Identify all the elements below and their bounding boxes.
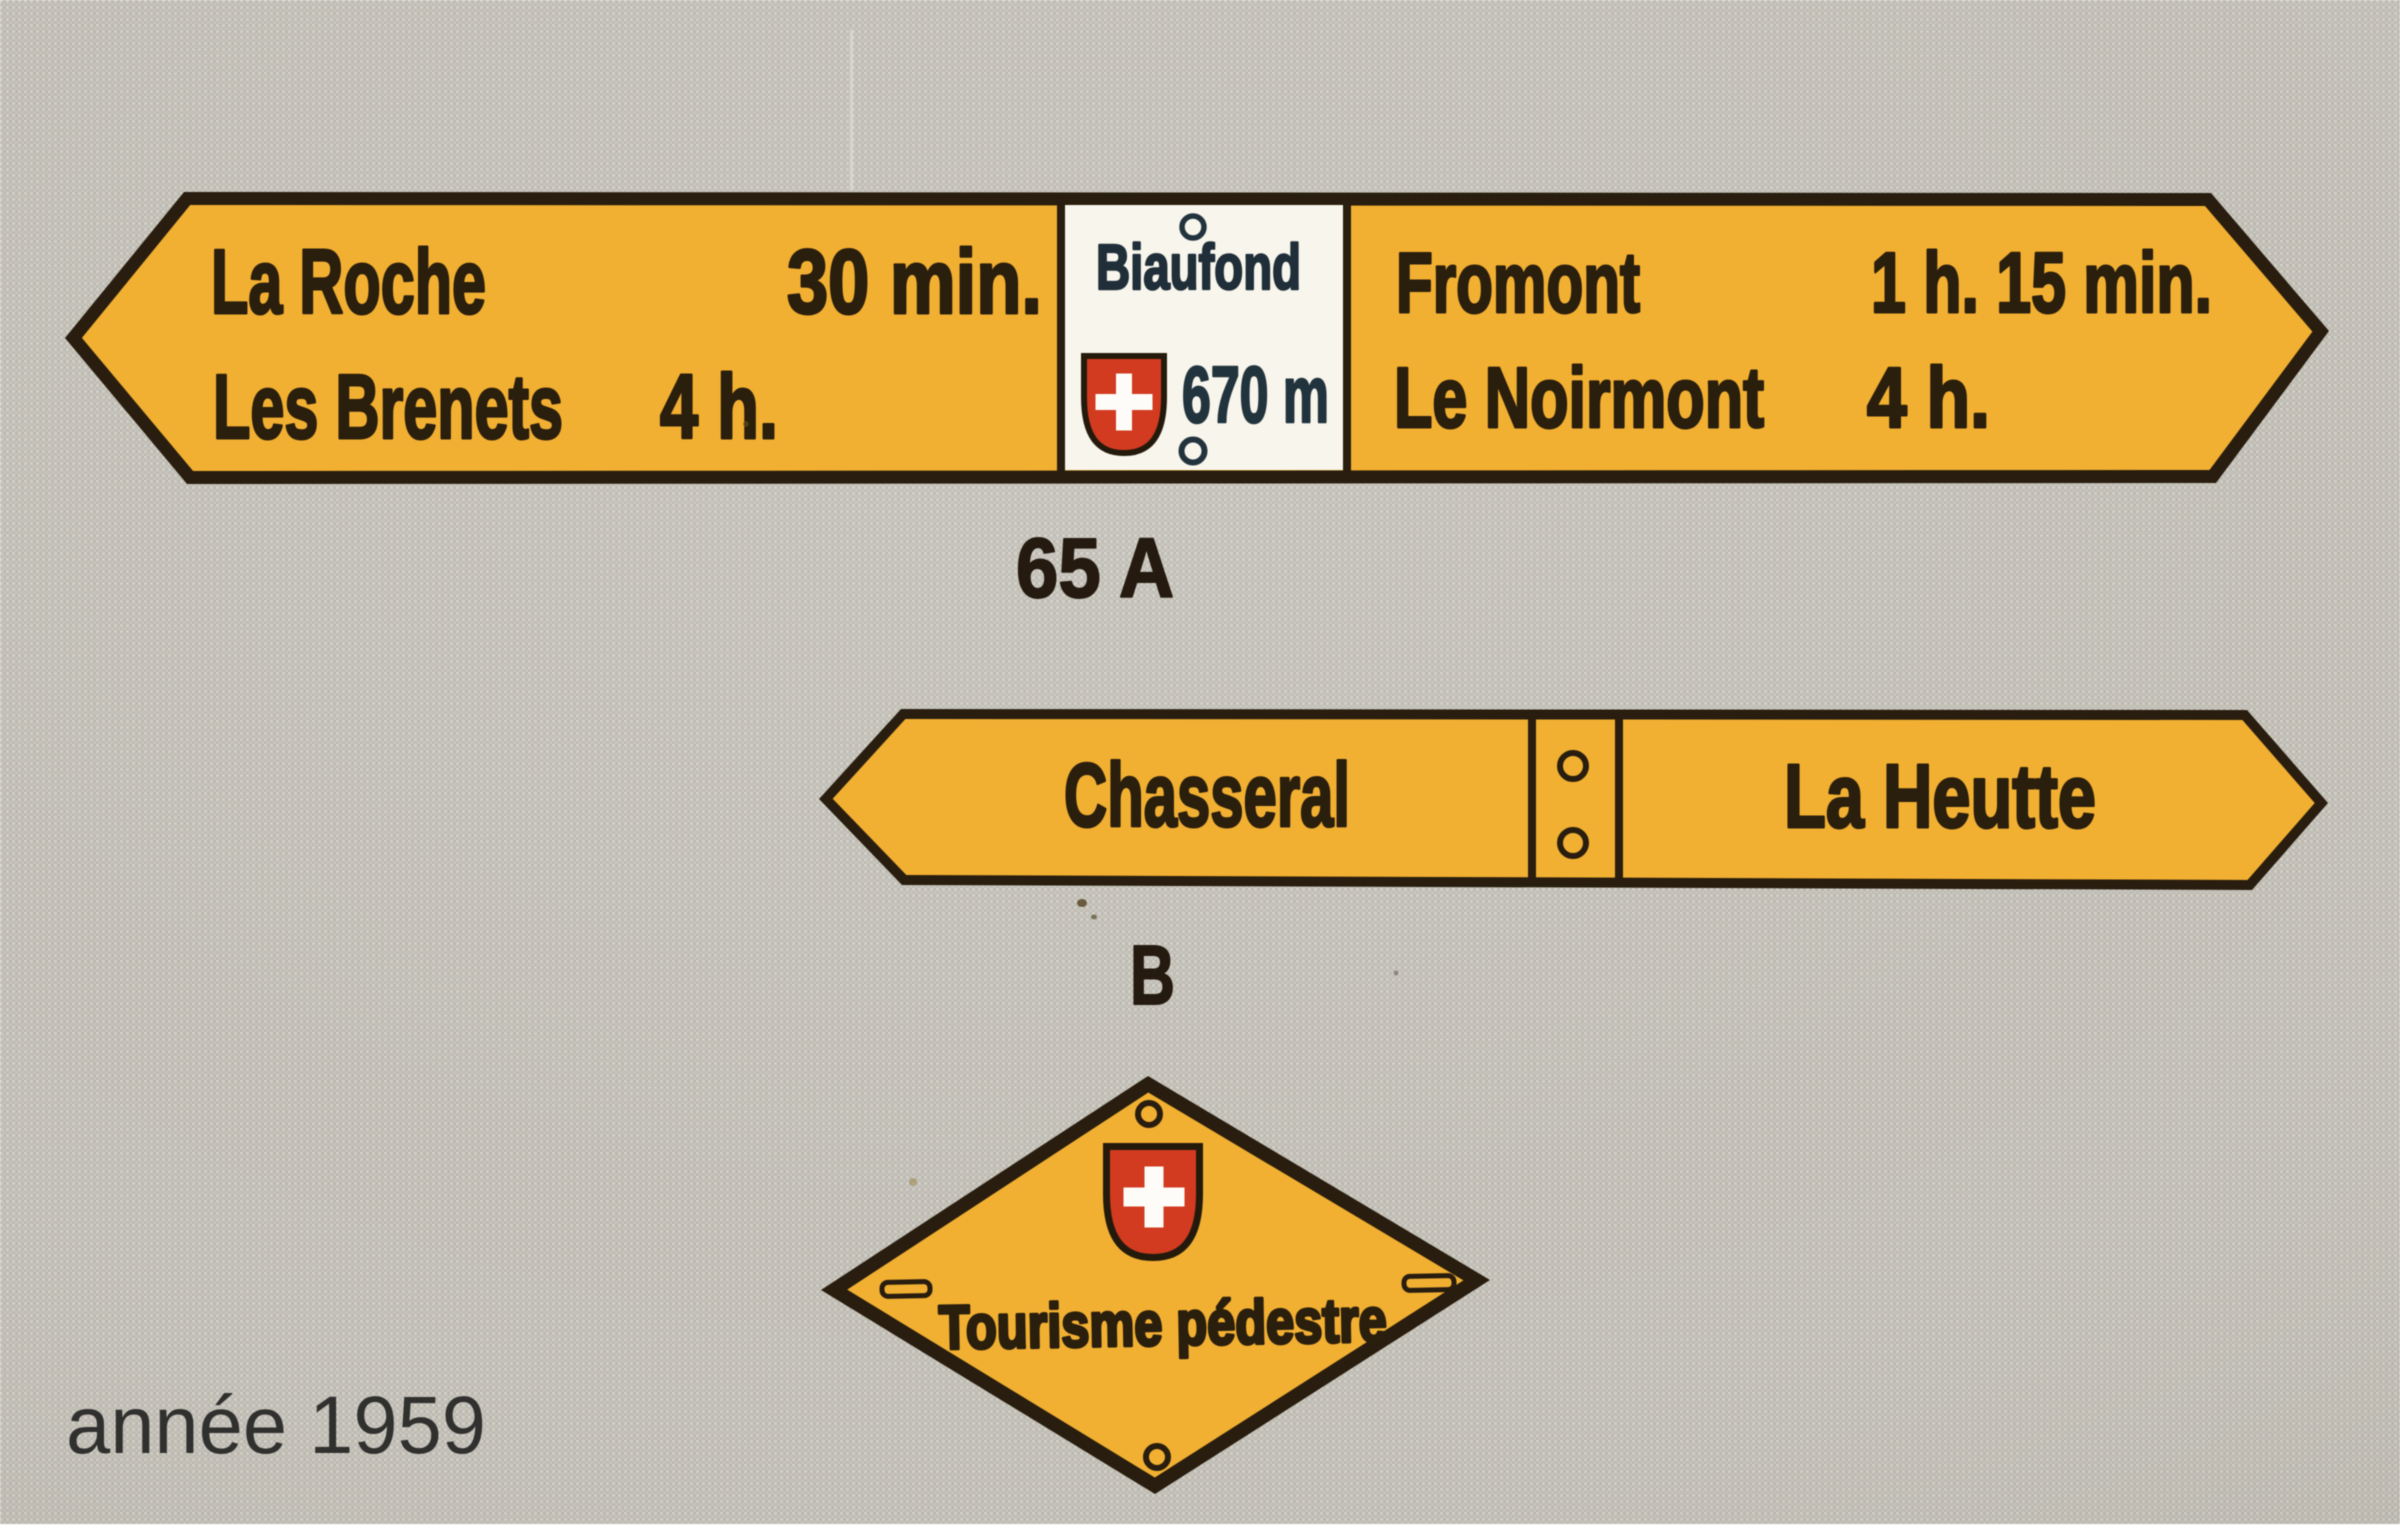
svg-text:1 h. 15 min.: 1 h. 15 min. xyxy=(1871,236,2212,331)
svg-text:Chasseral: Chasseral xyxy=(1064,746,1350,846)
svg-text:Fromont: Fromont xyxy=(1396,236,1640,331)
svg-text:La Heutte: La Heutte xyxy=(1784,747,2096,847)
svg-text:année 1959: année 1959 xyxy=(66,1380,486,1471)
svg-text:Biaufond: Biaufond xyxy=(1096,231,1301,303)
svg-text:4 h.: 4 h. xyxy=(660,357,778,458)
svg-text:La Roche: La Roche xyxy=(211,232,486,333)
svg-text:65 A: 65 A xyxy=(1016,521,1174,615)
svg-text:670 m: 670 m xyxy=(1182,350,1329,439)
svg-text:30 min.: 30 min. xyxy=(787,232,1042,333)
svg-text:Les Brenets: Les Brenets xyxy=(213,357,563,458)
svg-text:Le Noirmont: Le Noirmont xyxy=(1394,351,1764,446)
svg-text:4 h.: 4 h. xyxy=(1867,351,1990,446)
svg-text:B: B xyxy=(1130,928,1175,1022)
svg-text:Tourisme pédestre: Tourisme pédestre xyxy=(938,1286,1387,1363)
